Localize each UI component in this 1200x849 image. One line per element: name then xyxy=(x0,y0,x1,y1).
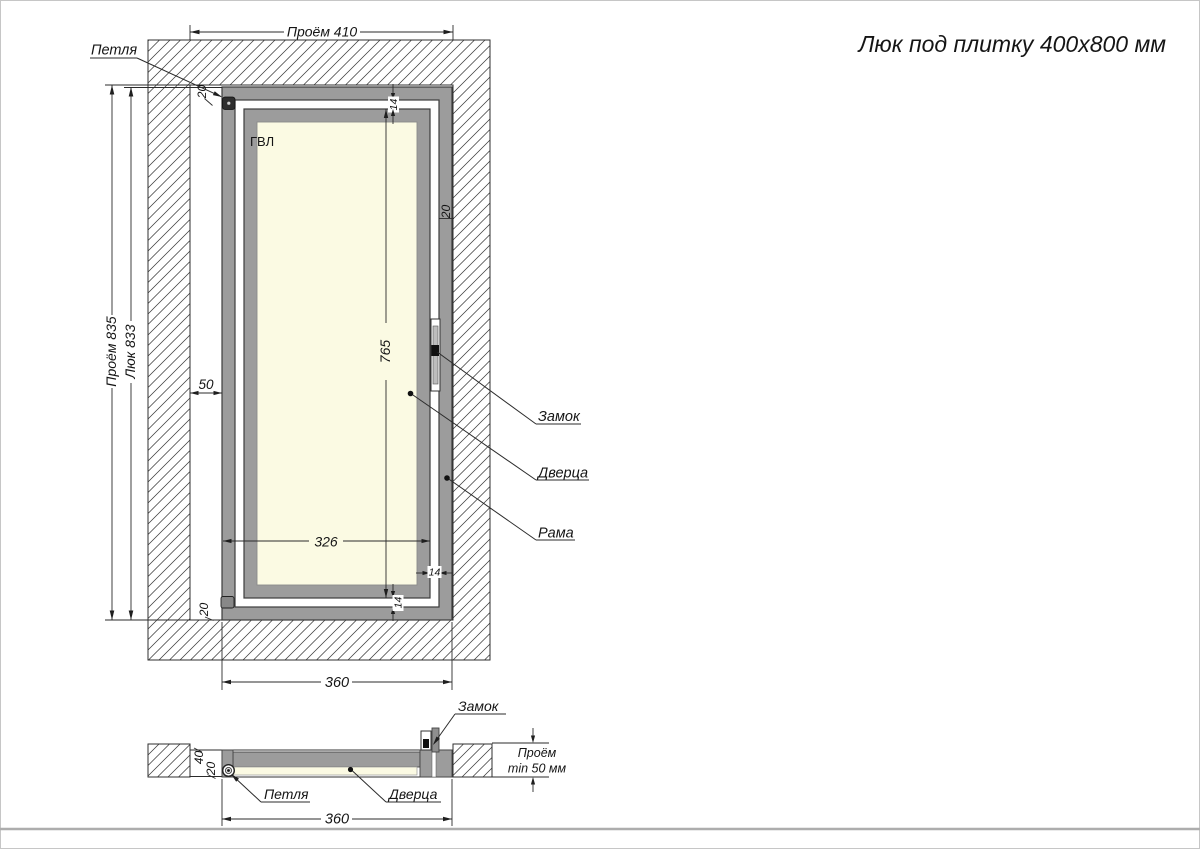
hinge-bottom xyxy=(221,597,234,609)
dim-frame-top-text: 20 xyxy=(195,85,209,100)
dim-frame-right-text: 20 xyxy=(439,205,453,220)
lock-label: Замок xyxy=(538,409,581,425)
door-label: Дверца xyxy=(536,466,588,482)
dim-frame-right-20: 20 xyxy=(439,205,454,220)
hinge-label: Петля xyxy=(91,43,137,59)
dim-door-height-text: 765 xyxy=(377,340,393,364)
section-door-steel xyxy=(233,752,420,767)
section-hinge-callout: Петля xyxy=(231,774,310,802)
dim-gap-top-text: 14 xyxy=(388,99,400,111)
section-assembly xyxy=(222,728,452,777)
technical-drawing-page: Люк под плитку 400х800 мм ГВЛ xyxy=(0,0,1200,849)
section-dim-depth: 40 20 xyxy=(192,748,218,779)
dim-side-gap: 50 xyxy=(190,377,222,395)
section-width-text: 360 xyxy=(325,812,349,828)
section-lock-catch xyxy=(423,739,429,748)
section-hinge xyxy=(223,765,235,777)
dim-panel-width-text: 326 xyxy=(314,534,338,550)
gvl-label: ГВЛ xyxy=(250,134,274,149)
section-view: 40 20 Замок Петля Дверца xyxy=(148,698,566,828)
section-lock-callout: Замок xyxy=(433,698,506,745)
dim-opening-width-text: Проём 410 xyxy=(287,24,358,40)
dim-opening-width: Проём 410 xyxy=(190,24,453,41)
dim-frame-bottom-text: 20 xyxy=(197,603,211,618)
section-wall-left xyxy=(148,744,190,777)
hinge-top xyxy=(223,97,236,110)
dim-side-gap-text: 50 xyxy=(198,377,214,392)
frame-callout-dot xyxy=(444,475,450,481)
section-dim-opening-depth: Проём min 50 мм xyxy=(492,728,566,792)
drawing-title: Люк под плитку 400х800 мм xyxy=(857,31,1167,57)
hinge-top-pin xyxy=(227,102,230,105)
section-opening-depth-line2: min 50 мм xyxy=(508,762,567,776)
section-hinge-pin xyxy=(227,769,230,772)
lock-callout-dot xyxy=(433,348,439,354)
dim-hatch-height-text: Люк 833 xyxy=(122,324,138,379)
section-door-thickness-text: 20 xyxy=(204,762,218,777)
section-hinge-label: Петля xyxy=(264,786,309,802)
section-door-label: Дверца xyxy=(387,786,438,802)
dim-opening-height-text: Проём 835 xyxy=(103,316,119,387)
dim-gap-bottom-text: 14 xyxy=(393,597,405,609)
dim-gap-right-text: 14 xyxy=(429,567,441,579)
lock-assembly xyxy=(431,319,440,391)
dim-frame-bottom-20: 20 xyxy=(197,603,214,621)
section-door-dot xyxy=(348,767,353,772)
section-opening-depth-line1: Проём xyxy=(518,746,557,760)
dim-frame-width-text: 360 xyxy=(325,675,349,691)
section-lock-label: Замок xyxy=(458,698,500,714)
section-gvl-panel xyxy=(233,767,417,775)
door-callout-dot xyxy=(408,391,414,397)
section-frame-slot xyxy=(432,750,436,777)
drawing-canvas: Люк под плитку 400х800 мм ГВЛ xyxy=(0,0,1200,849)
frame-label: Рама xyxy=(538,526,574,542)
section-wall-right xyxy=(453,744,492,777)
